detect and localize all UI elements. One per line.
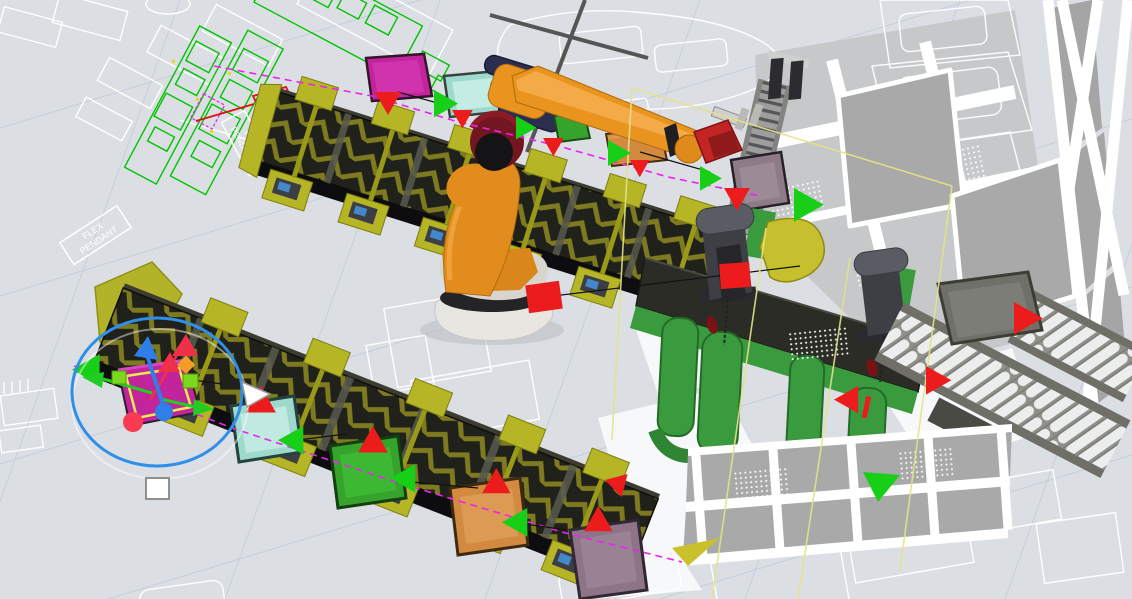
signal-red-diamond[interactable] [525,281,563,313]
roller-panel-gray[interactable] [938,272,1042,344]
gizmo-handle-lime[interactable] [112,371,126,384]
simulation-3d-viewport[interactable]: FLEX PENDANT FLEX PENDANT [0,0,1132,599]
gizmo-handle-red-ball[interactable] [123,412,143,432]
signal-red-square[interactable] [719,262,751,289]
gizmo-handle-lime[interactable] [183,374,198,388]
floor-marker-square[interactable] [146,478,169,499]
panel-purple-2[interactable] [570,520,647,599]
gizmo-handle-blue-ball[interactable] [155,403,173,421]
